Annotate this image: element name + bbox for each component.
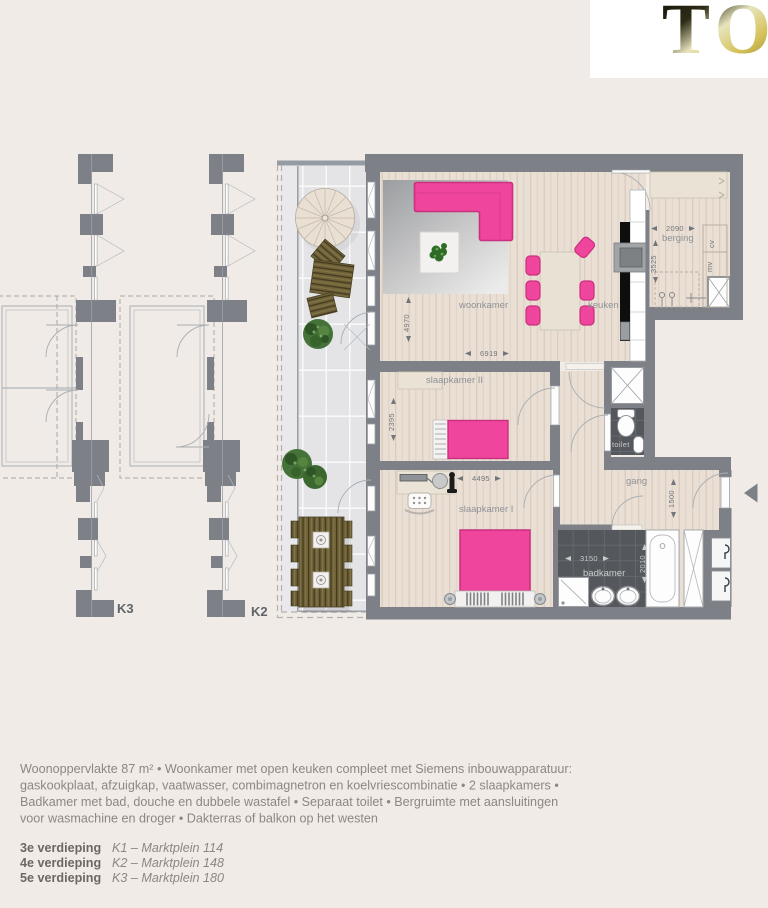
svg-text:voor wasmachine en droger • Da: voor wasmachine en droger • Dakterras of… [20,812,378,826]
svg-text:K2 – Marktplein 148: K2 – Marktplein 148 [112,856,224,870]
svg-text:mv: mv [705,261,714,272]
svg-text:woonkamer: woonkamer [458,300,508,311]
svg-text:2010: 2010 [638,555,647,573]
svg-text:4970: 4970 [402,314,411,332]
svg-text:6919: 6919 [480,349,498,358]
svg-text:K3 – Marktplein 180: K3 – Marktplein 180 [112,871,224,885]
svg-text:Woonoppervlakte 87 m² • Woonka: Woonoppervlakte 87 m² • Woonkamer met op… [20,762,572,776]
svg-text:gang: gang [626,476,647,487]
svg-text:3e verdieping: 3e verdieping [20,841,101,855]
svg-text:keuken: keuken [588,300,619,311]
svg-text:gaskookplaat, afzuigkap, vaatw: gaskookplaat, afzuigkap, vaatwasser, com… [20,779,559,793]
svg-text:K3: K3 [117,601,134,616]
svg-text:TO: TO [662,0,768,69]
svg-text:slaapkamer II: slaapkamer II [426,375,483,386]
svg-text:3525: 3525 [649,255,658,273]
svg-text:berging: berging [662,233,694,244]
svg-text:3150: 3150 [580,554,598,563]
svg-text:5e verdieping: 5e verdieping [20,871,101,885]
svg-text:4e verdieping: 4e verdieping [20,856,101,870]
svg-text:K1 – Marktplein 114: K1 – Marktplein 114 [112,841,223,855]
svg-text:Badkamer met bad, douche en du: Badkamer met bad, douche en dubbele wast… [20,795,558,809]
svg-text:2090: 2090 [666,224,684,233]
svg-text:badkamer: badkamer [583,568,625,579]
svg-text:cv: cv [707,240,716,248]
svg-text:slaapkamer I: slaapkamer I [459,504,513,515]
svg-text:1500: 1500 [667,490,676,508]
svg-text:2395: 2395 [387,413,396,431]
svg-text:toilet: toilet [612,440,630,449]
svg-text:4495: 4495 [472,474,490,483]
svg-text:K2: K2 [251,604,268,619]
